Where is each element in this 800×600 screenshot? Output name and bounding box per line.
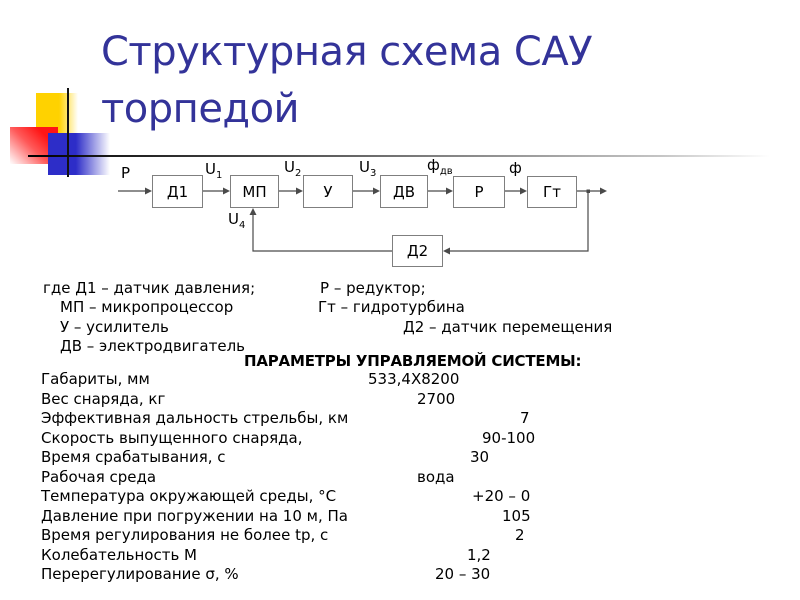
param-value: 2 bbox=[515, 526, 525, 545]
block-label: У bbox=[323, 183, 332, 201]
param-value: 7 bbox=[520, 409, 530, 428]
block-label: Гт bbox=[543, 183, 561, 201]
legend-row4-left: ДВ – электродвигатель bbox=[60, 337, 245, 356]
parameters-heading: ПАРАМЕТРЫ УПРАВЛЯЕМОЙ СИСТЕМЫ: bbox=[244, 352, 581, 370]
legend-row1-right: Р – редуктор; bbox=[320, 279, 426, 298]
block-mp-microprocessor: МП bbox=[230, 175, 279, 208]
signal-label-u2: U2 bbox=[284, 160, 301, 181]
signal-label-u4: U4 bbox=[228, 212, 245, 233]
param-value: вода bbox=[417, 468, 455, 487]
param-label: Колебательность М bbox=[41, 546, 197, 565]
slide-title: Структурная схема САУ торпедой bbox=[101, 24, 781, 138]
signal-label-fdv: фдв bbox=[427, 158, 453, 179]
signal-label-u3: U3 bbox=[359, 160, 376, 181]
block-d2-position-sensor: Д2 bbox=[392, 235, 443, 267]
block-label: Д2 bbox=[407, 242, 428, 260]
block-dv-electric-motor: ДВ bbox=[380, 175, 428, 208]
param-value: 533,4Х8200 bbox=[368, 370, 459, 389]
block-label: Д1 bbox=[167, 183, 188, 201]
legend-row2-left: МП – микропроцессор bbox=[60, 298, 233, 317]
param-value: 105 bbox=[502, 507, 531, 526]
signal-label-u1: U1 bbox=[205, 162, 222, 183]
param-value: +20 – 0 bbox=[472, 487, 530, 506]
decor-blue-square bbox=[48, 133, 110, 175]
legend-row3-right: Д2 – датчик перемещения bbox=[403, 318, 612, 337]
legend-row2-right: Гт – гидротурбина bbox=[318, 298, 465, 317]
slide-title-line1: Структурная схема САУ bbox=[101, 24, 781, 81]
param-label: Перерегулирование σ, % bbox=[41, 565, 239, 584]
decor-vertical-line bbox=[67, 88, 69, 177]
signal-label-p: Р bbox=[121, 166, 130, 187]
param-value: 30 bbox=[470, 448, 489, 467]
legend-row1-left: где Д1 – датчик давления; bbox=[43, 279, 255, 298]
block-r-reducer: Р bbox=[453, 176, 505, 208]
block-label: МП bbox=[242, 183, 266, 201]
signal-label-f: ф bbox=[509, 161, 522, 182]
param-label: Температура окружающей среды, °С bbox=[41, 487, 336, 506]
param-value: 1,2 bbox=[467, 546, 491, 565]
legend-row3-left: У – усилитель bbox=[60, 318, 169, 337]
slide-title-line2: торпедой bbox=[101, 81, 781, 138]
param-label: Эффективная дальность стрельбы, км bbox=[41, 409, 348, 428]
param-label: Время регулирования не более tp, с bbox=[41, 526, 328, 545]
wire-junction-dot bbox=[587, 190, 591, 194]
param-label: Рабочая среда bbox=[41, 468, 156, 487]
param-label: Давление при погружении на 10 м, Па bbox=[41, 507, 348, 526]
param-value: 90-100 bbox=[482, 429, 535, 448]
title-separator-line bbox=[28, 155, 770, 157]
presentation-slide: Структурная схема САУ торпедой bbox=[0, 0, 800, 600]
param-label: Время срабатывания, с bbox=[41, 448, 226, 467]
param-value: 20 – 30 bbox=[435, 565, 490, 584]
block-gt-hydroturbine: Гт bbox=[527, 176, 577, 208]
block-d1-pressure-sensor: Д1 bbox=[152, 175, 203, 208]
param-label: Габариты, мм bbox=[41, 370, 150, 389]
param-label: Вес снаряда, кг bbox=[41, 390, 165, 409]
param-label: Скорость выпущенного снаряда, bbox=[41, 429, 302, 448]
param-value: 2700 bbox=[417, 390, 455, 409]
block-u-amplifier: У bbox=[303, 175, 353, 208]
block-label: ДВ bbox=[393, 183, 415, 201]
block-label: Р bbox=[474, 183, 483, 201]
